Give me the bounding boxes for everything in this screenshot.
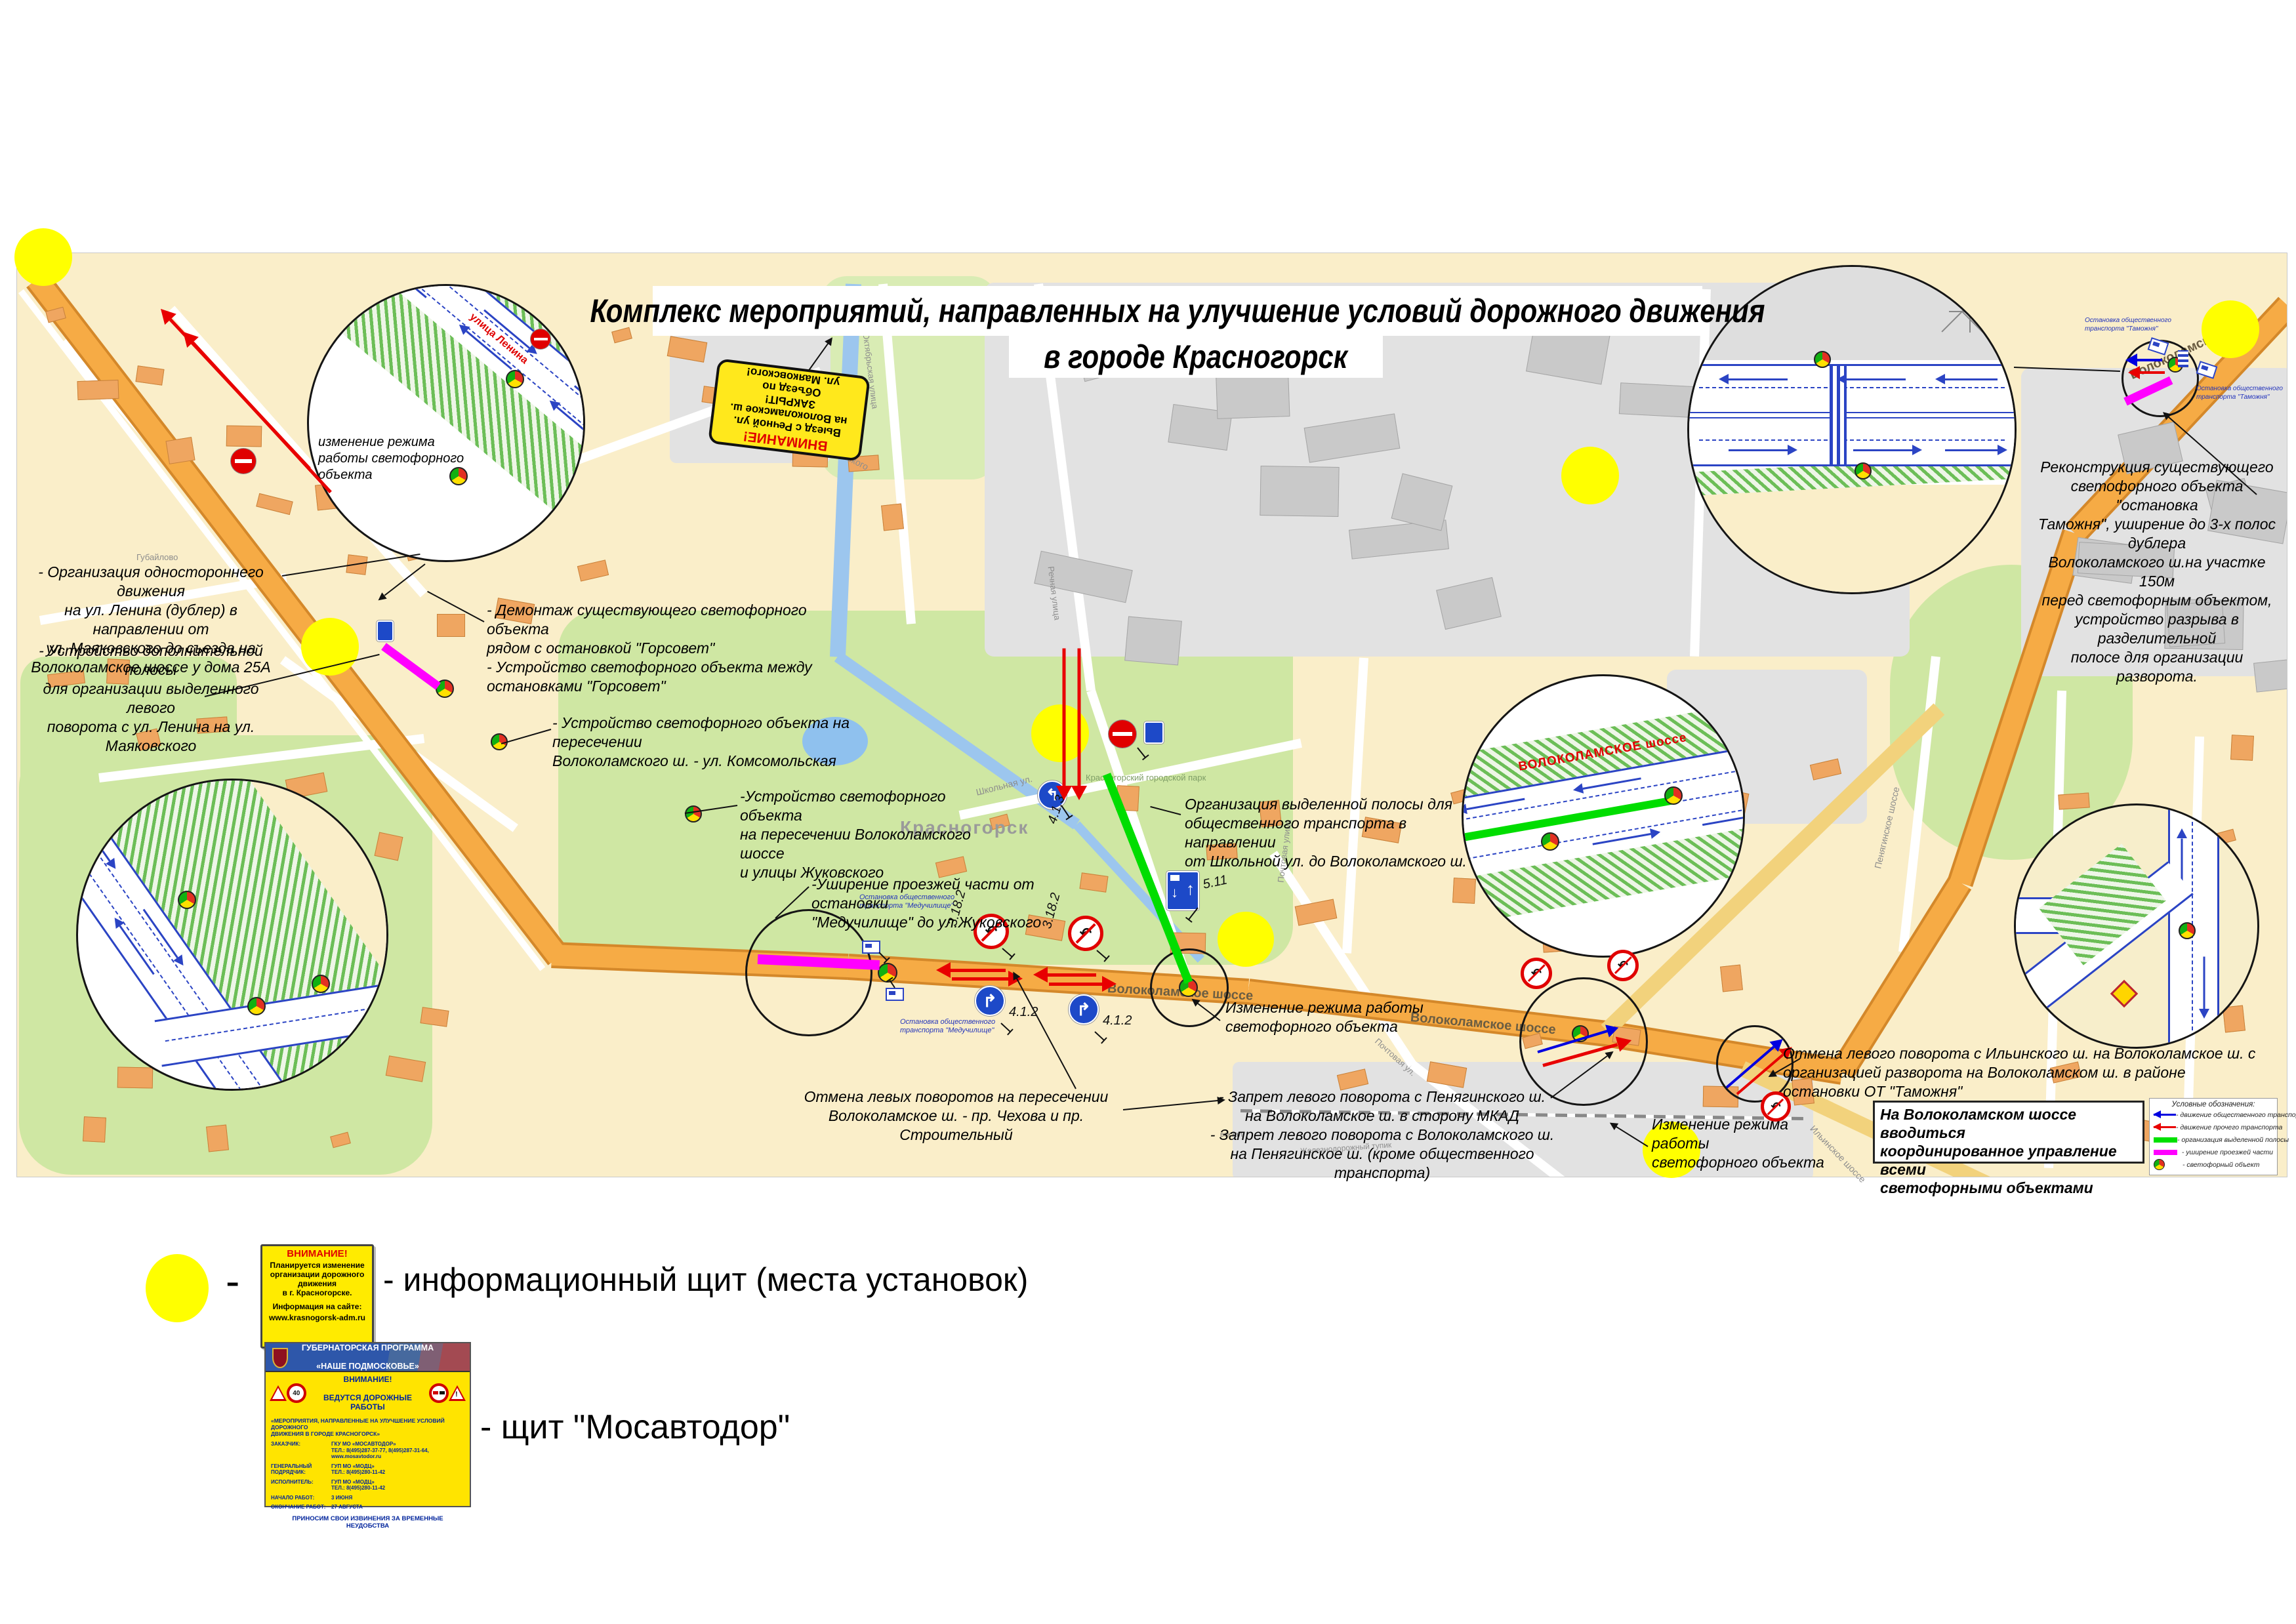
legend-label: - движение прочего транспорта xyxy=(2176,1124,2282,1131)
traffic-light-icon xyxy=(491,733,508,750)
arrow-line xyxy=(1853,449,1912,451)
building xyxy=(611,327,632,344)
crosswalk-icon xyxy=(2178,350,2188,367)
building xyxy=(165,437,195,464)
no-entry-icon xyxy=(531,329,550,349)
no-overtaking-icon xyxy=(429,1383,449,1403)
traffic-light-icon xyxy=(1541,832,1559,851)
annotation-bus-lane: Организация выделенной полосы для общест… xyxy=(1185,795,1500,871)
legend-label: - светофорный объект xyxy=(2183,1161,2260,1169)
bus-stop-label: Остановка общественного транспорта "Тамо… xyxy=(2196,384,2295,401)
annotation-zhukovskogo: -Устройство светофорного объекта на пере… xyxy=(740,787,996,882)
mos-row-value: 27 АВГУСТА xyxy=(331,1504,464,1511)
arrowhead-icon xyxy=(1912,445,1922,455)
coat-of-arms-icon xyxy=(272,1348,288,1368)
mos-row-label: ЗАКАЗЧИК: xyxy=(271,1441,331,1460)
annotation-mode-center: Изменение режима работы светофорного объ… xyxy=(1225,998,1448,1036)
arrowhead-icon xyxy=(1837,374,1847,384)
detour-sign-icon xyxy=(377,620,394,641)
arrowhead-icon xyxy=(1935,374,1945,384)
annotation-mode-circle: изменение режима работы светофорного объ… xyxy=(318,434,469,483)
traffic-light-icon xyxy=(685,805,702,822)
annotation-widening: -Уширение проезжей части от остановки "М… xyxy=(811,875,1094,932)
mos-row-label: ОКОНЧАНИЕ РАБОТ: xyxy=(271,1504,331,1511)
arrow-line xyxy=(1847,378,1906,380)
mosavtodor-sign: ГУБЕРНАТОРСКАЯ ПРОГРАММА «НАШЕ ПОДМОСКОВ… xyxy=(264,1342,471,1507)
bus-stop-label: Остановка общественного транспорта "Меду… xyxy=(900,1018,1012,1035)
mos-program1: ГУБЕРНАТОРСКАЯ ПРОГРАММА xyxy=(302,1343,434,1352)
green-bar-icon xyxy=(2154,1137,2177,1143)
arrowhead-icon xyxy=(1998,445,2007,455)
legend-row: - движение общественного транспорта xyxy=(2154,1108,2273,1121)
turn-right-sign-icon: ↱ xyxy=(1069,994,1099,1025)
poster-title-line1: Комплекс мероприятий, направленных на ул… xyxy=(590,294,1765,327)
mos-warn2: ВЕДУТСЯ ДОРОЖНЫЕ РАБОТЫ xyxy=(323,1393,412,1411)
info-sign-site-label: Информация на сайте: xyxy=(262,1302,372,1311)
no-left-turn-sign-icon: ↶ xyxy=(1521,958,1552,989)
mos-row-value: ГУП МО «МОДЦ» ТЕЛ.: 8(495)280-11-42 xyxy=(331,1463,464,1476)
arrowhead-icon xyxy=(1719,374,1729,384)
traffic-light-icon xyxy=(878,963,897,983)
poster-title-line2: в городе Красногорск xyxy=(1044,340,1348,373)
annotation-extra-lane: - Устройство дополнительной полосы для о… xyxy=(20,641,282,756)
mos-footer: ПРИНОСИМ СВОИ ИЗВИНЕНИЯ ЗА ВРЕМЕННЫЕ НЕУ… xyxy=(271,1515,464,1530)
map-legend-title: Условные обозначения: xyxy=(2154,1101,2273,1108)
traffic-light-icon xyxy=(1664,786,1683,805)
speed-limit-icon: 40 xyxy=(287,1383,306,1403)
no-entry-icon xyxy=(1109,720,1136,748)
lane-line xyxy=(1699,387,2005,388)
legend-label: - движение общественного транспорта xyxy=(2176,1111,2296,1119)
arrowhead-icon xyxy=(110,915,125,929)
roadworks-sign-icon xyxy=(270,1385,287,1401)
building xyxy=(1124,617,1182,666)
info-sign-site: www.krasnogorsk-adm.ru xyxy=(262,1313,372,1322)
legend-dash: - xyxy=(226,1257,239,1305)
bus-lane-sign-icon: ↓ ↑ xyxy=(1166,871,1199,910)
coordination-notice: На Волоколамском шоссе вводиться координ… xyxy=(1873,1101,2144,1164)
legend-label: - организация выделенной полосы xyxy=(2177,1136,2289,1144)
bus-pictogram xyxy=(1170,875,1179,881)
building xyxy=(881,503,904,531)
building xyxy=(83,1116,106,1143)
info-shield-dot xyxy=(1561,447,1619,504)
ring-ilinskoe-junction xyxy=(1716,1025,1794,1103)
mos-warn1: ВНИМАНИЕ! xyxy=(344,1375,392,1384)
map-legend: Условные обозначения: - движение обществ… xyxy=(2149,1098,2278,1175)
arrowhead-icon xyxy=(1572,783,1584,795)
building xyxy=(1116,785,1139,811)
info-shield-dot xyxy=(2202,300,2259,358)
callout-road-group xyxy=(1462,698,1745,936)
info-shield-dot-legend xyxy=(146,1254,209,1322)
arrowhead-icon xyxy=(1788,445,1797,455)
arrow-line xyxy=(1945,449,1998,451)
info-shield-dot xyxy=(1031,704,1089,762)
sign-code-412: 4.1.2 xyxy=(1103,1013,1132,1028)
legend-row: - организация выделенной полосы xyxy=(2154,1133,2273,1146)
info-shield-sign: ВНИМАНИЕ! Планируется изменение организа… xyxy=(260,1244,374,1349)
arrowhead-icon xyxy=(1650,827,1662,839)
callout-road xyxy=(1689,364,2015,466)
bus-stop-icon xyxy=(862,941,880,954)
exclamation-icon: ! xyxy=(449,1385,466,1401)
traffic-light-icon xyxy=(2179,922,2196,939)
annotation-penyaginskoe: - Запрет левого поворота с Пенягинского … xyxy=(1208,1087,1556,1183)
mos-row-value: 3 ИЮНЯ xyxy=(331,1495,464,1501)
building xyxy=(256,493,293,515)
no-left-turn-sign-icon: ↶ xyxy=(1607,950,1639,981)
arrowhead-icon xyxy=(441,284,455,287)
arrow-line xyxy=(119,925,155,975)
building xyxy=(2058,792,2089,809)
mosavtodor-body: «МЕРОПРИЯТИЯ, НАПРАВЛЕННЫЕ НА УЛУЧШЕНИЕ … xyxy=(266,1414,470,1531)
mosavtodor-warn-row: 40 ВНИМАНИЕ! ВЕДУТСЯ ДОРОЖНЫЕ РАБОТЫ ! xyxy=(266,1372,470,1414)
annotation-komsomolskaya: - Устройство светофорного объекта на пер… xyxy=(552,714,907,771)
info-shield-dot xyxy=(14,228,72,286)
callout-circle-dedicated-lane: ВОЛОКОЛАМСКОЕ шоссе xyxy=(1462,674,1745,958)
legend-row: - светофорный объект xyxy=(2154,1158,2273,1171)
annotation-gorsovet: - Демонтаж существующего светофорного об… xyxy=(487,601,841,696)
traffic-light-icon xyxy=(1814,351,1831,368)
mos-row-label: ГЕНЕРАЛЬНЫЙ ПОДРЯДЧИК: xyxy=(271,1463,331,1476)
traffic-measures-poster: Красногорский городской парк Красногорск… xyxy=(0,0,2296,1624)
legend-label: - уширение проезжей части xyxy=(2182,1148,2273,1156)
building xyxy=(1720,964,1743,992)
no-entry-icon xyxy=(231,449,256,474)
red-arrow-icon xyxy=(2154,1126,2176,1128)
traffic-light-icon xyxy=(1179,978,1198,997)
arrowhead-icon xyxy=(2177,828,2187,838)
info-sign-body: Планируется изменение организации дорожн… xyxy=(262,1261,372,1297)
bus-stop-label: Остановка общественного транспорта "Тамо… xyxy=(2085,316,2183,333)
place-label-gubaylovo: Губайлово xyxy=(136,552,178,562)
sign-code-412: 4.1.2 xyxy=(1009,1005,1038,1020)
info-sign-title: ВНИМАНИЕ! xyxy=(262,1248,372,1259)
building xyxy=(437,614,465,637)
legend-row: - движение прочего транспорта xyxy=(2154,1121,2273,1133)
traffic-light-icon xyxy=(1855,462,1872,479)
traffic-light-icon xyxy=(247,997,266,1015)
traffic-light-icon xyxy=(436,680,454,698)
park-label: Красногорский городской парк xyxy=(1086,773,1206,782)
traffic-light-icon xyxy=(1572,1025,1589,1042)
mos-row-value: ГУП МО «МОДЦ» ТЕЛ.: 8(495)280-11-42 xyxy=(331,1479,464,1492)
poster-title-box: Комплекс мероприятий, направленных на ул… xyxy=(653,286,1702,336)
annotation-ilinskoe: Отмена левого поворота с Ильинского ш. н… xyxy=(1783,1044,2283,1101)
building xyxy=(346,554,367,575)
annotation-left-turns: Отмена левых поворотов на пересечении Во… xyxy=(787,1087,1125,1145)
arrow-line xyxy=(1729,378,1788,380)
annotation-mode-right: Изменение режима работы светофорного объ… xyxy=(1652,1115,1842,1172)
arrow-line xyxy=(1945,378,1998,380)
map-patch xyxy=(1689,485,2015,594)
callout-circle-lenina: улица Ленина изменение режима работы све… xyxy=(307,284,585,562)
building xyxy=(2230,735,2254,761)
turn-right-sign-icon: ↱ xyxy=(975,986,1005,1016)
lane-line xyxy=(1699,439,2005,441)
detour-sign-icon xyxy=(1144,721,1164,744)
building xyxy=(77,380,119,400)
callout-circle-southwest xyxy=(76,779,388,1091)
callout-road-group: улица Ленина xyxy=(308,284,585,552)
arrow-line xyxy=(2204,956,2205,1009)
blue-arrow-icon xyxy=(2154,1114,2176,1116)
traffic-light-icon xyxy=(312,975,330,993)
bus-stop-icon xyxy=(886,988,904,1001)
median-line xyxy=(1689,412,2015,418)
mosavtodor-caption: - щит "Мосавтодор" xyxy=(480,1408,790,1447)
poster-subtitle-box: в городе Красногорск xyxy=(1009,336,1383,378)
mos-row-value: ГКУ МО «МОСАВТОДОР» ТЕЛ.: 8(495)287-37-7… xyxy=(331,1441,464,1460)
mos-subject: «МЕРОПРИЯТИЯ, НАПРАВЛЕННЫЕ НА УЛУЧШЕНИЕ … xyxy=(271,1417,464,1437)
info-shield-caption: - информационный щит (места установок) xyxy=(383,1261,1028,1299)
traffic-light-icon xyxy=(2154,1159,2165,1170)
arrow-line xyxy=(1583,777,1641,790)
info-shield-dot xyxy=(1218,912,1274,967)
info-shield-dot xyxy=(301,618,359,676)
traffic-light-icon xyxy=(178,891,196,909)
priority-road-sign-icon xyxy=(2110,980,2138,1007)
building xyxy=(135,365,164,385)
arrow-line xyxy=(1729,449,1788,451)
traffic-light-icon xyxy=(506,370,524,388)
callout-circle-interchange xyxy=(2014,803,2259,1049)
annotation-reconstruction: Реконструкция существующего светофорного… xyxy=(2031,458,2283,686)
magenta-bar-icon xyxy=(2154,1150,2177,1155)
compass-icon xyxy=(1949,291,1991,333)
mos-row-label: ИСПОЛНИТЕЛЬ: xyxy=(271,1479,331,1492)
arrowhead-icon xyxy=(2199,1009,2209,1019)
building xyxy=(206,1124,229,1152)
legend-row: - уширение проезжей части xyxy=(2154,1146,2273,1158)
building xyxy=(1260,466,1339,517)
mosavtodor-header: ГУБЕРНАТОРСКАЯ ПРОГРАММА «НАШЕ ПОДМОСКОВ… xyxy=(266,1343,470,1372)
building xyxy=(117,1067,154,1089)
building xyxy=(226,426,262,447)
building xyxy=(577,559,609,581)
speed-value: 40 xyxy=(293,1390,300,1397)
mos-row-label: НАЧАЛО РАБОТ: xyxy=(271,1495,331,1501)
mos-program2: «НАШЕ ПОДМОСКОВЬЕ» xyxy=(316,1362,419,1371)
